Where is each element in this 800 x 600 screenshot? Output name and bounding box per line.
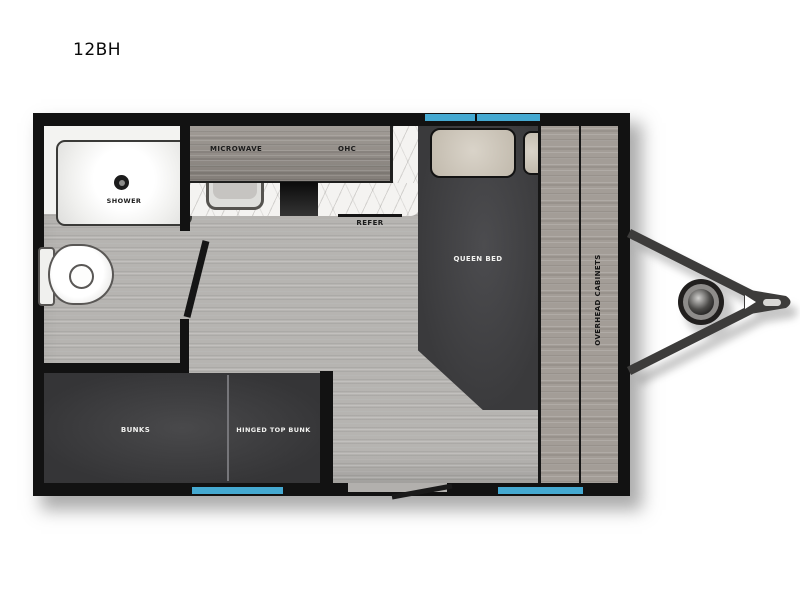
wall-top	[33, 113, 630, 126]
bathroom-wall-stub	[180, 319, 189, 364]
window-divider	[475, 114, 477, 121]
window-top	[425, 114, 540, 121]
queen-bed-label: QUEEN BED	[418, 255, 538, 263]
shower-area: SHOWER	[44, 126, 180, 214]
hinged-top-bunk-label: HINGED TOP BUNK	[227, 426, 320, 434]
overhead-cabinets-label: OVERHEAD CABINETS	[594, 254, 602, 345]
toilet-bowl	[48, 244, 114, 305]
floorplan-diagram: SHOWER MICROWAVE OHC REFER QUEEN BED OVE…	[33, 113, 630, 496]
bunks-label: BUNKS	[44, 426, 227, 434]
window-bottom-left	[192, 487, 283, 494]
countertop-right	[393, 126, 420, 183]
ohc-label: OHC	[338, 145, 356, 153]
bunk-beds: BUNKS HINGED TOP BUNK	[44, 373, 320, 483]
kitchen-upper-cabinet: MICROWAVE OHC	[190, 126, 393, 184]
propane-tank	[678, 279, 724, 325]
bathroom-bottom-wall	[33, 363, 189, 373]
model-title: 12BH	[73, 40, 121, 60]
toilet-seat	[69, 264, 94, 289]
floorplan-page: { "page": { "title": "12BH" }, "floorpla…	[0, 0, 800, 600]
bathroom-wall	[180, 126, 190, 231]
overhead-cabinets: OVERHEAD CABINETS	[538, 126, 618, 483]
shower-pan: SHOWER	[56, 140, 192, 226]
sink-basin	[213, 183, 257, 199]
refer-label: REFER	[338, 219, 402, 227]
refrigerator-edge	[338, 214, 402, 217]
cooktop	[280, 182, 318, 216]
shower-drain-icon	[114, 175, 129, 190]
tongue-shadow	[638, 243, 798, 381]
shower-label: SHOWER	[58, 197, 190, 205]
hitch-coupler	[744, 289, 791, 315]
trailer-tongue	[629, 233, 791, 371]
pillow-left	[430, 128, 516, 178]
kitchen-sink	[206, 183, 264, 210]
microwave-label: MICROWAVE	[210, 145, 262, 153]
cabinet-divider	[579, 126, 581, 483]
wall-right	[618, 113, 630, 496]
bunk-side-wall	[320, 371, 333, 483]
pillow-right	[523, 131, 538, 175]
toilet	[38, 244, 116, 306]
entry-door-opening	[348, 483, 447, 492]
window-bottom-right	[498, 487, 583, 494]
